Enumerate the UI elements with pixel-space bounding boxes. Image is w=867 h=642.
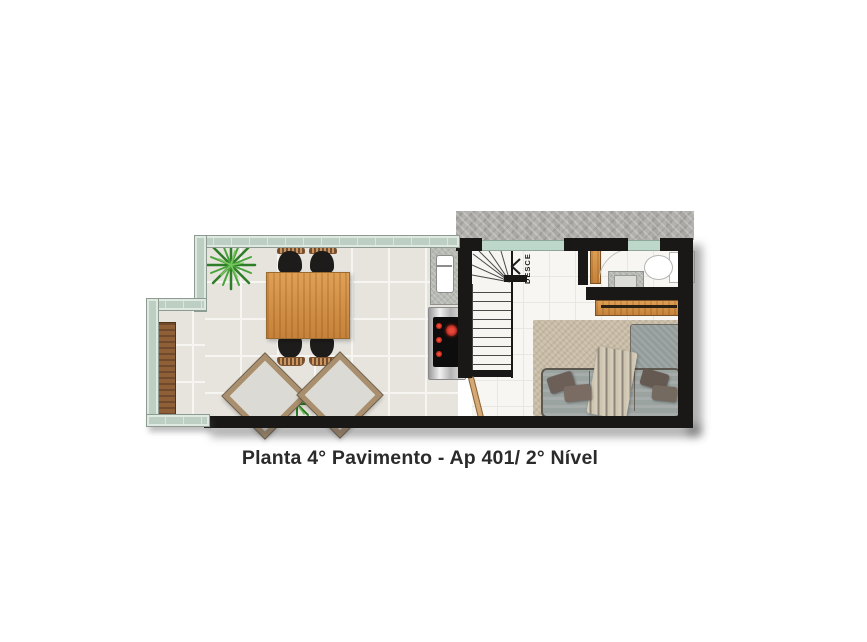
dining-chair-back [277,357,305,366]
glass-railing-left-lower [146,298,159,427]
toilet-icon [644,255,673,280]
pillow [563,384,592,403]
plan-title: Planta 4° Pavimento - Ap 401/ 2° Nível [120,447,720,473]
right-wall [678,238,693,428]
window-glass [482,240,564,251]
divider-wall [458,238,472,378]
exterior-concrete-band [456,211,694,240]
sofa-cushion-seam [634,371,635,411]
window-glass [628,240,660,251]
bottom-wall [204,416,693,428]
dining-chair [278,251,302,274]
dining-chair [310,251,334,274]
floor-plan-canvas: DESCE [0,0,867,642]
burner-icon [436,323,442,329]
pillow [651,385,677,403]
glass-railing-bottom [146,414,210,427]
burner-icon [436,337,442,343]
dining-table [266,272,350,339]
stair-flight [472,283,512,371]
burner-icon [436,351,442,357]
bathroom-side-wall [578,240,588,285]
top-wall-segment [564,238,628,251]
burner-icon [446,325,457,336]
stair-direction-label: DESCE [521,250,534,284]
stair-bottom-edge [472,370,513,377]
wall-shelf [595,300,685,316]
glass-railing-top [194,235,460,248]
kitchen-sink [436,255,454,293]
bathroom-bottom-wall [586,287,693,300]
wall-shelf-groove [601,305,677,308]
sink-divider [437,265,452,267]
